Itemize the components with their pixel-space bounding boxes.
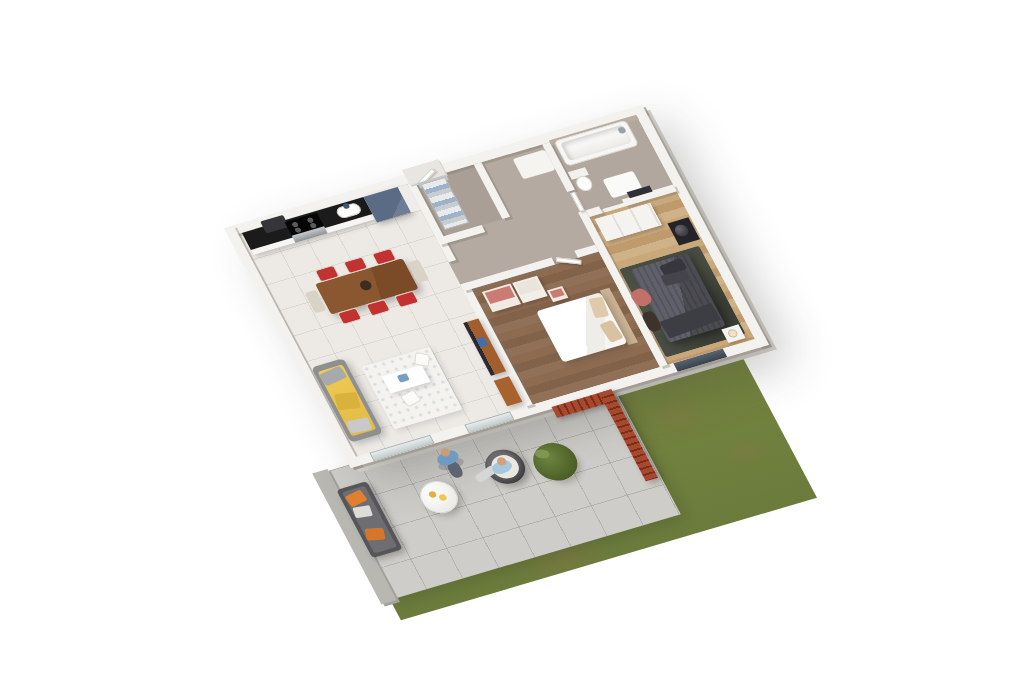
floor-plan-3d	[174, 20, 1024, 683]
side-chair	[414, 352, 430, 367]
sofa-throw-yellow	[334, 392, 361, 410]
floor-plan-render-stage	[0, 0, 1024, 683]
outdoor-pillow-orange-2	[364, 528, 385, 541]
